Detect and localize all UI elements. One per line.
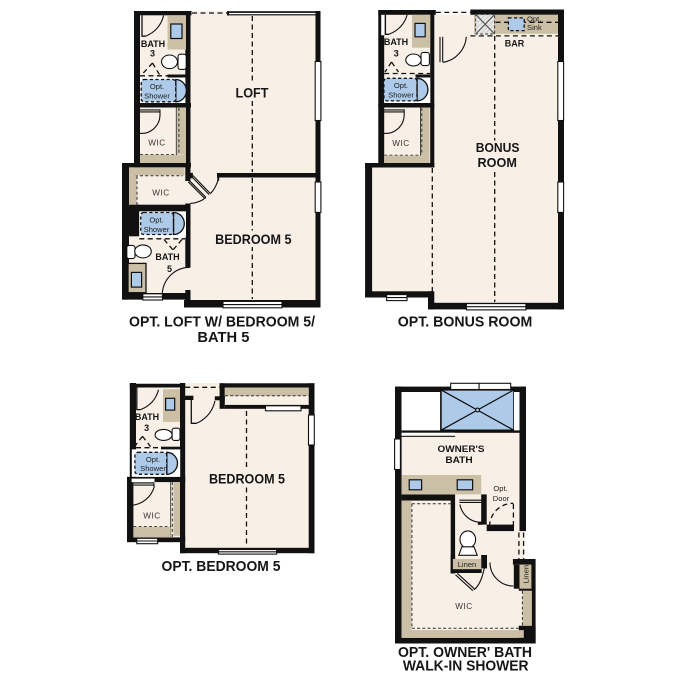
svg-text:BAR: BAR	[505, 38, 525, 48]
svg-text:3: 3	[394, 49, 399, 59]
svg-text:Opt.: Opt.	[146, 455, 160, 464]
svg-text:Opt.: Opt.	[149, 216, 163, 225]
svg-text:Opt.: Opt.	[150, 82, 164, 91]
svg-text:OWNER'S: OWNER'S	[438, 444, 485, 454]
svg-text:Linen: Linen	[458, 560, 477, 569]
svg-text:Shower: Shower	[140, 464, 166, 473]
svg-text:OPT. BEDROOM 5: OPT. BEDROOM 5	[162, 558, 281, 575]
svg-text:WIC: WIC	[148, 139, 165, 148]
svg-text:WIC: WIC	[392, 139, 409, 148]
svg-text:Shower: Shower	[144, 225, 170, 234]
svg-text:WIC: WIC	[143, 512, 160, 521]
svg-text:BEDROOM 5: BEDROOM 5	[215, 231, 292, 247]
svg-text:BEDROOM 5: BEDROOM 5	[209, 470, 285, 486]
svg-text:5: 5	[167, 264, 172, 274]
svg-text:BONUS: BONUS	[476, 141, 520, 155]
svg-text:BATH: BATH	[135, 412, 159, 422]
svg-text:ROOM: ROOM	[478, 156, 517, 170]
svg-text:WIC: WIC	[455, 602, 472, 611]
svg-text:Opt.: Opt.	[394, 81, 408, 90]
svg-text:Opt.: Opt.	[493, 484, 507, 493]
svg-text:OPT. BONUS ROOM: OPT. BONUS ROOM	[398, 314, 533, 331]
svg-text:Shower: Shower	[144, 92, 170, 101]
svg-text:BATH: BATH	[445, 455, 472, 465]
svg-text:Shower: Shower	[388, 91, 414, 100]
svg-text:LOFT: LOFT	[236, 85, 269, 101]
svg-text:WIC: WIC	[152, 189, 169, 198]
svg-text:BATH: BATH	[141, 39, 165, 49]
svg-text:BATH: BATH	[155, 252, 179, 262]
svg-text:OPT. LOFT W/ BEDROOM 5/: OPT. LOFT W/ BEDROOM 5/	[129, 313, 316, 330]
svg-text:Door: Door	[493, 494, 510, 503]
svg-text:Sink: Sink	[527, 23, 542, 32]
svg-text:Linen: Linen	[521, 565, 530, 584]
svg-text:3: 3	[150, 49, 155, 59]
svg-text:BATH: BATH	[384, 37, 408, 47]
svg-text:BATH 5: BATH 5	[197, 329, 249, 346]
svg-text:3: 3	[144, 423, 149, 433]
svg-text:WALK-IN SHOWER: WALK-IN SHOWER	[403, 657, 529, 674]
